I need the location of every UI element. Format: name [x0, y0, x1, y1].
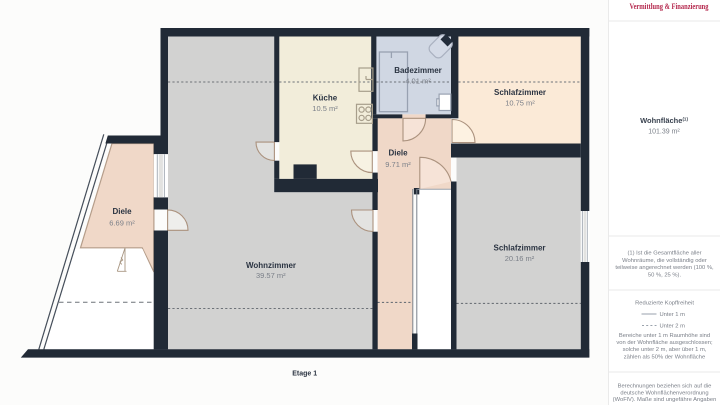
svg-text:(WoFlV). Maße sind ungefähre A: (WoFlV). Maße sind ungefähre Angaben	[613, 397, 717, 403]
svg-text:4.01 m²: 4.01 m²	[405, 77, 431, 86]
svg-text:Etage 1: Etage 1	[292, 371, 317, 378]
svg-text:50 %, 25 %).: 50 %, 25 %).	[648, 273, 682, 279]
svg-text:Wohnfläche(1): Wohnfläche(1)	[640, 116, 688, 125]
svg-text:101.39 m²: 101.39 m²	[648, 129, 680, 136]
svg-text:20.16 m²: 20.16 m²	[505, 254, 535, 263]
svg-text:Diele: Diele	[112, 207, 132, 216]
svg-text:zählen als 50% der Wohnfläche: zählen als 50% der Wohnfläche	[624, 354, 705, 360]
svg-text:Vermittlung & Finanzierung: Vermittlung & Finanzierung	[630, 2, 710, 11]
svg-text:10.5 m²: 10.5 m²	[312, 104, 338, 113]
svg-text:Schlafzimmer: Schlafzimmer	[493, 244, 545, 253]
svg-text:Wohnzimmer: Wohnzimmer	[246, 261, 296, 270]
svg-text:Berechnungen beziehen sich auf: Berechnungen beziehen sich auf die	[618, 384, 712, 390]
svg-text:Reduzierte Kopffreiheit: Reduzierte Kopffreiheit	[635, 301, 694, 307]
svg-text:6.69 m²: 6.69 m²	[109, 218, 135, 227]
svg-text:10.75 m²: 10.75 m²	[505, 99, 535, 108]
svg-text:deutsche Wohnflächenverordnung: deutsche Wohnflächenverordnung	[620, 390, 708, 396]
svg-text:39.57 m²: 39.57 m²	[256, 271, 286, 280]
svg-text:9.71 m²: 9.71 m²	[385, 160, 411, 169]
svg-text:(1) Ist die Gesamtfläche aller: (1) Ist die Gesamtfläche aller	[627, 251, 701, 257]
svg-text:Unter 2 m: Unter 2 m	[660, 323, 686, 329]
svg-text:von der Wohnfläche ausgeschlos: von der Wohnfläche ausgeschlossen;	[616, 340, 713, 346]
svg-text:teilweise angerechnet werden (: teilweise angerechnet werden (100 %,	[615, 265, 714, 271]
svg-text:Badezimmer: Badezimmer	[394, 66, 442, 75]
svg-text:Unter 1 m: Unter 1 m	[660, 312, 686, 318]
svg-text:Schlafzimmer: Schlafzimmer	[494, 88, 546, 97]
svg-text:solche unter 2 m, aber über 1: solche unter 2 m, aber über 1 m,	[623, 347, 707, 353]
svg-text:Wohnräume, die vollständig ode: Wohnräume, die vollständig oder	[622, 258, 707, 264]
svg-text:Diele: Diele	[388, 149, 408, 158]
svg-text:Küche: Küche	[313, 94, 338, 103]
svg-text:Bereiche unter 1 m Raumhöhe si: Bereiche unter 1 m Raumhöhe sind	[619, 333, 710, 339]
